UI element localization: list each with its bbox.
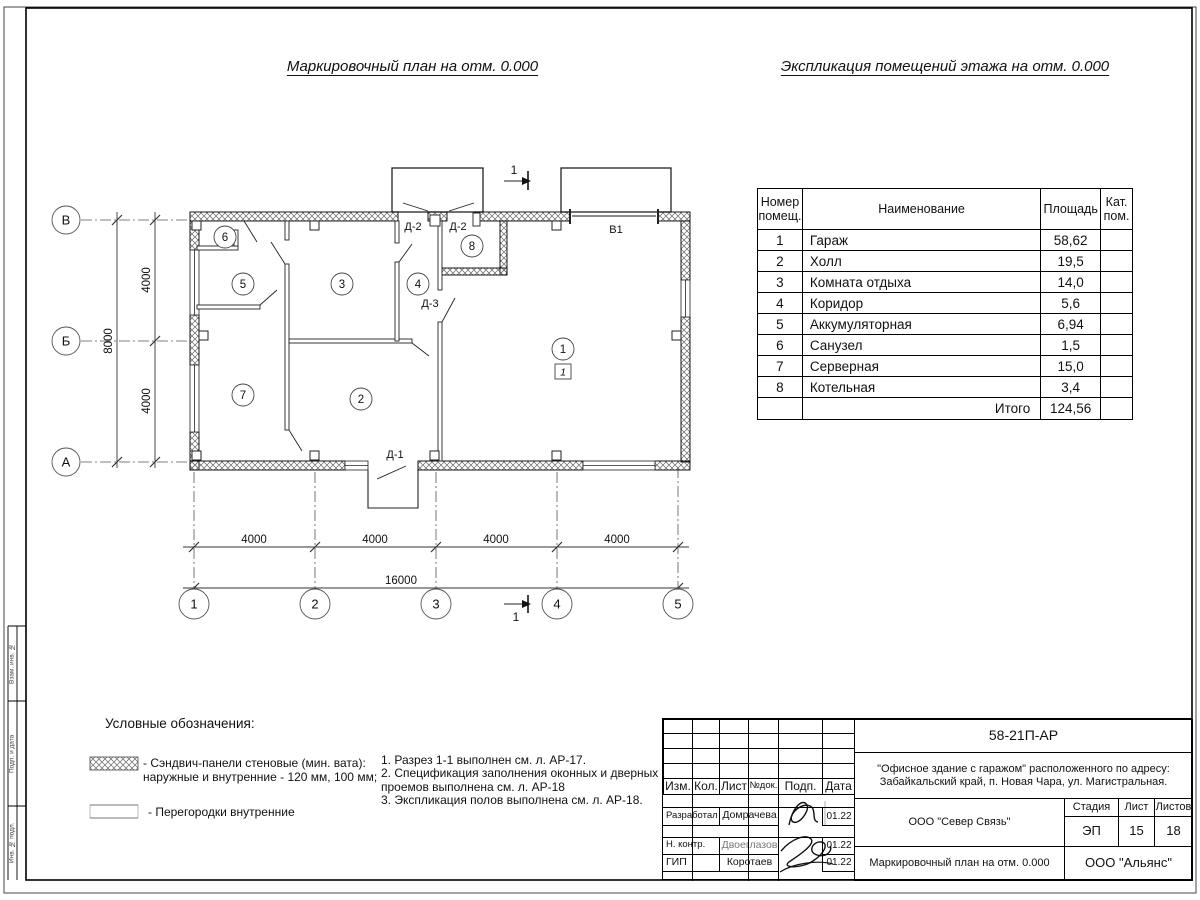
- tb-org-customer: ООО "Альянс": [1064, 846, 1193, 881]
- room-number-4: 4: [415, 279, 422, 291]
- room-number-6: 6: [222, 232, 228, 244]
- table-row: 2 Холл 19,5: [758, 251, 1132, 272]
- plan-title: Маркировочный план на отм. 0.000: [255, 58, 570, 75]
- tb-col-izm: Изм.: [663, 778, 693, 795]
- plan-notes: 1. Разрез 1-1 выполнен см. л. АР-17. 2. …: [381, 754, 661, 808]
- legend-title: Условные обозначения:: [105, 716, 255, 731]
- legend-item-sandwich: - Сэндвич-панели стеновые (мин. вата): н…: [143, 757, 377, 784]
- door-label-d1: Д-1: [386, 449, 403, 461]
- dim-4000-3: 4000: [483, 534, 509, 546]
- room-number-5: 5: [240, 279, 246, 291]
- door-label-d2a: Д-2: [404, 221, 421, 233]
- dim-4000-1: 4000: [241, 534, 267, 546]
- tb-col-list: Лист: [719, 778, 749, 795]
- svg-text:5: 5: [674, 597, 681, 612]
- side-stamp-label-2: Подп. и дата: [7, 701, 17, 806]
- dim-8000: 8000: [103, 328, 115, 354]
- room-explication-table: Номер помещ. Наименование Площадь Кат. п…: [757, 188, 1133, 420]
- tb-org-design: ООО "Север Связь": [854, 798, 1065, 847]
- dim-16000: 16000: [385, 575, 417, 587]
- tb-sheet-value: 15: [1118, 816, 1155, 847]
- side-stamp-label-1: Взам. инв. №: [7, 626, 17, 701]
- header-room-number: Номер помещ.: [758, 189, 803, 230]
- table-total-row: Итого 124,56: [758, 398, 1132, 419]
- total-value: 124,56: [1041, 398, 1101, 419]
- tb-col-ndoc: №док.: [748, 778, 779, 795]
- dim-4000-4: 4000: [604, 534, 630, 546]
- room-numbers: 1 2 3 4 5 6 7 8 1: [222, 232, 566, 406]
- tb-date-developed: 01.22: [822, 807, 855, 826]
- room-number-7: 7: [240, 390, 246, 402]
- tb-date-gip: 01.22: [822, 854, 855, 872]
- svg-text:1: 1: [513, 610, 520, 624]
- door-label-d2b: Д-2: [449, 221, 466, 233]
- tb-col-data: Дата: [822, 778, 855, 795]
- table-row: 6 Санузел 1,5: [758, 335, 1132, 356]
- total-label: Итого: [803, 398, 1041, 419]
- columns: [192, 221, 681, 460]
- tb-name-gip: Коротаев: [719, 854, 779, 872]
- explication-title: Экспликация помещений этажа на отм. 0.00…: [775, 58, 1115, 75]
- section-mark-top: 1: [504, 163, 531, 190]
- table-row: 7 Серверная 15,0: [758, 356, 1132, 377]
- tb-name-developed: Домрачева: [719, 807, 779, 826]
- gate-b1: [570, 209, 658, 224]
- table-row: 8 Котельная 3,4: [758, 377, 1132, 398]
- tb-doc-code: 58-21П-АР: [854, 719, 1193, 753]
- svg-text:В: В: [62, 213, 71, 228]
- gate-label-b1: В1: [609, 224, 622, 236]
- header-area: Площадь: [1041, 189, 1101, 230]
- partitions: [197, 221, 442, 461]
- tb-col-podp: Подп.: [778, 778, 823, 795]
- svg-text:1: 1: [190, 597, 197, 612]
- tb-sheet-label: Лист: [1118, 798, 1155, 817]
- dimension-texts: 4000 4000 4000 4000 16000 4000 4000 8000: [103, 267, 630, 587]
- table-row: 4 Коридор 5,6: [758, 293, 1132, 314]
- tb-sheets-label: Листов: [1154, 798, 1193, 817]
- room-number-8: 8: [469, 241, 475, 253]
- tb-sheets-value: 18: [1154, 816, 1193, 847]
- side-stamp-label-3: Инв. № подл.: [7, 806, 17, 880]
- dim-left-4000-2: 4000: [141, 388, 153, 414]
- table-row: 3 Комната отдыха 14,0: [758, 272, 1132, 293]
- room-number-3: 3: [339, 279, 345, 291]
- svg-text:1: 1: [511, 163, 518, 177]
- room-number-1: 1: [560, 344, 566, 356]
- tb-col-kol: Кол.: [692, 778, 720, 795]
- tb-stage-label: Стадия: [1064, 798, 1119, 817]
- room-markers: [214, 226, 574, 410]
- table-header-row: Номер помещ. Наименование Площадь Кат. п…: [758, 189, 1132, 230]
- tb-stage-value: ЭП: [1064, 816, 1119, 847]
- svg-text:Б: Б: [62, 334, 71, 349]
- svg-text:А: А: [62, 455, 71, 470]
- section-mark-bottom: 1: [504, 595, 531, 624]
- header-name: Наименование: [803, 189, 1041, 230]
- legend-item-partitions: - Перегородки внутренние: [148, 806, 295, 820]
- dim-left-4000-1: 4000: [141, 267, 153, 293]
- drawing-sheet: 4000 4000 4000 4000 16000 4000 4000 8000…: [0, 0, 1200, 900]
- title-block: Изм. Кол. Лист №док. Подп. Дата Разработ…: [662, 718, 1192, 880]
- svg-text:2: 2: [311, 597, 318, 612]
- tb-project: "Офисное здание с гаражом" расположенног…: [854, 752, 1193, 799]
- floor-type-mark: 1: [560, 367, 566, 379]
- tb-name-ncontrol: Двоеглазов: [719, 837, 779, 855]
- door-label-d3: Д-3: [421, 298, 438, 310]
- table-row: 5 Аккумуляторная 6,94: [758, 314, 1132, 335]
- room-number-2: 2: [358, 394, 364, 406]
- svg-text:4: 4: [553, 597, 560, 612]
- header-category: Кат. пом.: [1101, 189, 1132, 230]
- legend-swatches: [90, 757, 138, 818]
- tb-drawing-name: Маркировочный план на отм. 0.000: [854, 846, 1065, 881]
- tb-date-ncontrol: 01.22: [822, 837, 855, 855]
- svg-text:3: 3: [432, 597, 439, 612]
- dim-4000-2: 4000: [362, 534, 388, 546]
- table-row: 1 Гараж 58,62: [758, 230, 1132, 251]
